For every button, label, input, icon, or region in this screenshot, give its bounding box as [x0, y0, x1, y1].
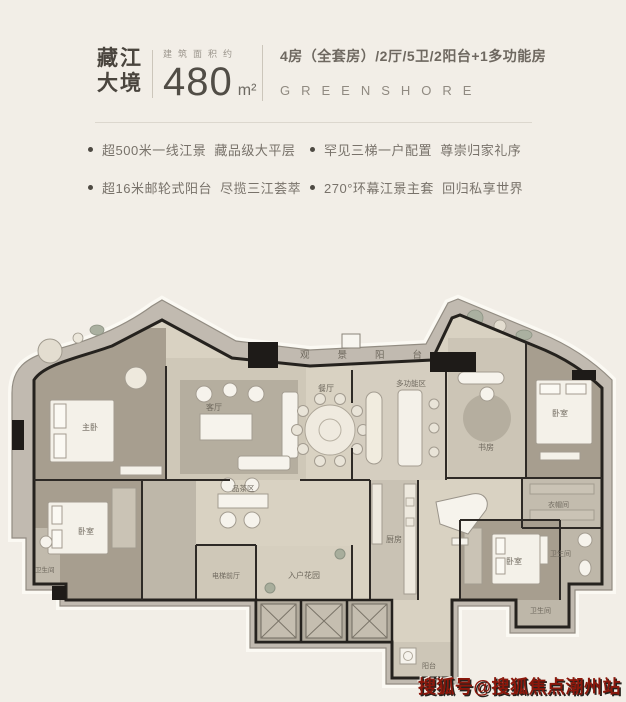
area-label: 建筑面积约	[163, 47, 256, 60]
label-bathroom-b: 卫生间	[530, 606, 551, 615]
label-dining-room: 餐厅	[318, 384, 334, 393]
selling-point-text: 超16米邮轮式阳台 尽揽三江荟萃	[102, 178, 301, 197]
brand-english-name: GREENSHORE	[280, 83, 546, 98]
header-divider-1	[152, 50, 153, 98]
area-value: 480	[163, 62, 233, 102]
floorplan-drawing: 观景阳台 主卧 卧室 客厅 餐厅 多功能区 书房 卧室 卧室 衣帽间 卫生间 卫…	[0, 288, 626, 700]
selling-points: 超500米一线江景 藏品级大平层 罕见三梯一户配置 尊崇归家礼序 超16米邮轮式…	[88, 140, 558, 197]
label-bedroom-4: 卧室	[506, 556, 522, 566]
label-living-room: 客厅	[206, 402, 222, 412]
label-cloakroom: 衣帽间	[548, 500, 569, 509]
elevator-core	[256, 600, 392, 642]
selling-point: 270°环幕江景主套 回归私享世界	[310, 178, 558, 197]
project-name-line2: 大境	[97, 71, 143, 95]
watermark: 搜狐号@搜狐焦点潮州站	[418, 673, 621, 699]
selling-point: 超16米邮轮式阳台 尽揽三江荟萃	[88, 178, 310, 197]
flyer-page: 藏江大境 建筑面积约 480 m² 4房（全套房）/2厅/5卫/2阳台+1多功能…	[0, 0, 626, 702]
bullet-icon	[88, 147, 93, 152]
selling-point-text: 超500米一线江景 藏品级大平层	[102, 140, 295, 159]
selling-point-text: 罕见三梯一户配置 尊崇归家礼序	[324, 140, 521, 159]
label-bathroom-a: 卫生间	[550, 549, 571, 558]
selling-point: 罕见三梯一户配置 尊崇归家礼序	[310, 140, 558, 159]
area-unit: m²	[238, 80, 257, 102]
label-multi-function: 多功能区	[396, 378, 426, 388]
area-block: 建筑面积约 480 m²	[163, 47, 256, 102]
label-tea-area: 品茶区	[232, 483, 255, 493]
label-master-bedroom: 主卧	[82, 422, 98, 432]
spec-block: 4房（全套房）/2厅/5卫/2阳台+1多功能房 GREENSHORE	[280, 46, 546, 98]
bullet-icon	[88, 185, 93, 190]
bullet-icon	[310, 147, 315, 152]
label-elevator-hall: 电梯前厅	[212, 571, 240, 580]
bullet-icon	[310, 185, 315, 190]
floorplan: 观景阳台 主卧 卧室 客厅 餐厅 多功能区 书房 卧室 卧室 衣帽间 卫生间 卫…	[0, 288, 626, 700]
header-rule	[95, 122, 532, 123]
project-name: 藏江大境	[97, 46, 147, 96]
label-kitchen: 厨房	[386, 534, 402, 544]
selling-point-text: 270°环幕江景主套 回归私享世界	[324, 178, 523, 197]
header-divider-2	[262, 45, 263, 101]
label-entry-garden: 入户花园	[288, 570, 320, 580]
selling-point: 超500米一线江景 藏品级大平层	[88, 140, 310, 159]
layout-spec: 4房（全套房）/2厅/5卫/2阳台+1多功能房	[280, 46, 546, 66]
label-service-balcony: 阳台	[422, 661, 436, 670]
label-bedroom-3: 卧室	[552, 408, 568, 418]
project-name-line1: 藏江	[97, 46, 143, 70]
label-study: 书房	[478, 442, 494, 452]
label-bathroom-c: 卫生间	[35, 565, 55, 574]
label-top-balcony: 观景阳台	[300, 349, 450, 361]
label-bedroom-2: 卧室	[78, 526, 94, 536]
